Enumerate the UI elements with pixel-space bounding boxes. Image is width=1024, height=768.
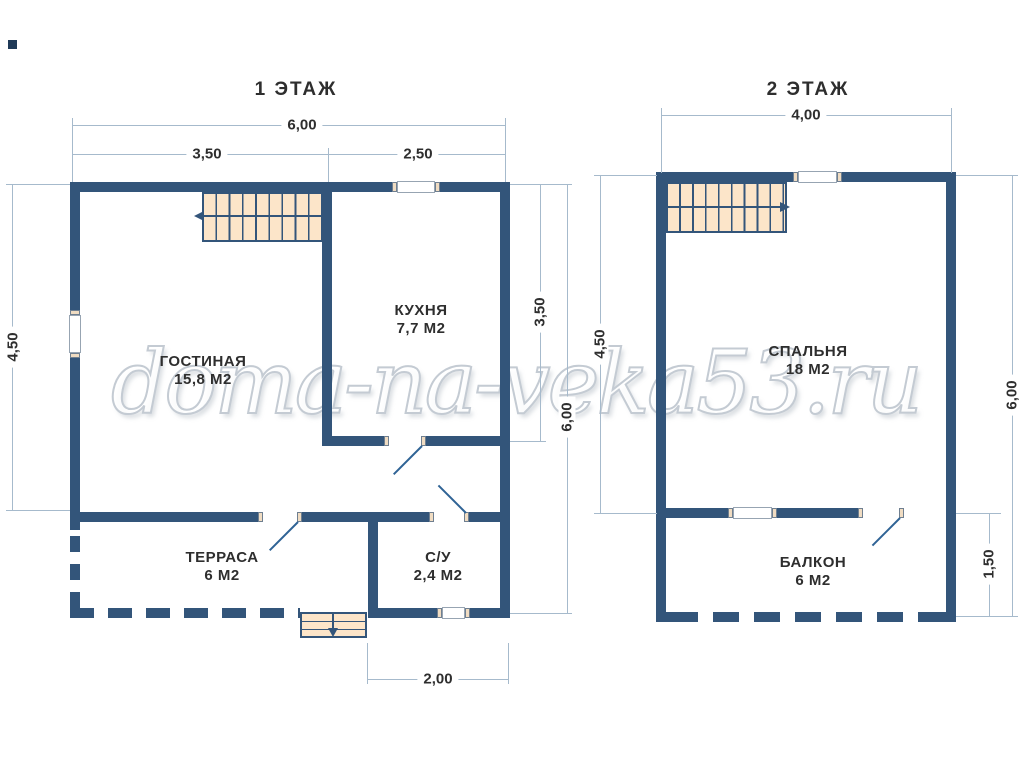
plan2-stairs-midline bbox=[666, 206, 787, 208]
dim-plan1-left: 4,50 bbox=[5, 326, 22, 367]
extension-line bbox=[72, 118, 73, 182]
dim-plan1-bottom: 2,00 bbox=[417, 671, 458, 688]
room-label-living-room: ГОСТИНАЯ 15,8 М2 bbox=[160, 353, 247, 389]
plan1-stairs bbox=[202, 192, 325, 242]
plan2-left-wall bbox=[656, 172, 666, 622]
plan1-kitchen-bottom-wall-b bbox=[426, 436, 500, 446]
stairs-direction-arrow-right bbox=[780, 202, 790, 212]
extension-line bbox=[6, 184, 70, 185]
room-name: КУХНЯ bbox=[395, 302, 448, 320]
plan1-bathroom-top-wall-a bbox=[378, 512, 429, 522]
room-label-kitchen: КУХНЯ 7,7 М2 bbox=[395, 302, 448, 338]
dim-plan2-top-total: 4,00 bbox=[785, 107, 826, 124]
extension-line bbox=[956, 616, 1018, 617]
extension-line bbox=[956, 513, 1001, 514]
plan2-divider-wall-b bbox=[777, 508, 858, 518]
room-area: 2,4 М2 bbox=[414, 567, 463, 585]
door-jamb bbox=[429, 512, 434, 522]
room-area: 6 М2 bbox=[780, 572, 846, 590]
dim-plan2-left: 4,50 bbox=[592, 323, 609, 364]
plan1-title: 1 ЭТАЖ bbox=[255, 79, 338, 101]
room-area: 6 М2 bbox=[185, 567, 258, 585]
plan2-right-wall bbox=[946, 172, 956, 622]
room-label-terrace: ТЕРРАСА 6 М2 bbox=[185, 549, 258, 585]
plan1-top-wall bbox=[70, 182, 510, 192]
door-jamb bbox=[384, 436, 389, 446]
room-name: БАЛКОН bbox=[780, 554, 846, 572]
room-name: ТЕРРАСА bbox=[185, 549, 258, 567]
dim-plan2-right-balcony: 1,50 bbox=[981, 543, 998, 584]
extension-line bbox=[594, 513, 657, 514]
plan2-balcony-dashed-wall bbox=[672, 612, 932, 622]
extension-line bbox=[956, 175, 1018, 176]
window-jamb bbox=[465, 608, 470, 618]
room-name: СПАЛЬНЯ bbox=[768, 343, 847, 361]
balcony-window bbox=[733, 507, 772, 519]
entry-direction-arrow-down bbox=[328, 628, 338, 637]
extension-line bbox=[594, 175, 657, 176]
plan1-stairs-midline bbox=[202, 215, 325, 217]
dim-plan1-right-kitchen: 3,50 bbox=[532, 291, 549, 332]
dimension-line bbox=[72, 154, 506, 155]
balcony-door-swing bbox=[872, 517, 901, 546]
plan1-terrace-dashed-wall bbox=[70, 608, 300, 618]
corner-mark bbox=[8, 40, 17, 49]
window-jamb bbox=[70, 353, 80, 358]
room-label-bathroom: С/У 2,4 М2 bbox=[414, 549, 463, 585]
plan1-terrace-top-wall-a bbox=[80, 512, 258, 522]
door-jamb bbox=[899, 508, 904, 518]
bathroom-window bbox=[442, 607, 465, 619]
plan1-right-wall bbox=[500, 182, 510, 618]
dim-plan1-right-total: 6,00 bbox=[559, 396, 576, 437]
room-name: С/У bbox=[414, 549, 463, 567]
plan1-bathroom-top-wall-b bbox=[469, 512, 500, 522]
extension-line bbox=[510, 613, 572, 614]
extension-line bbox=[510, 184, 572, 185]
extension-line bbox=[508, 643, 509, 684]
room-label-balcony: БАЛКОН 6 М2 bbox=[780, 554, 846, 590]
dim-plan1-top-left: 3,50 bbox=[186, 146, 227, 163]
plan2-bottom-corner-left bbox=[656, 612, 672, 622]
extension-line bbox=[6, 510, 70, 511]
plan1-kitchen-bottom-wall-a bbox=[322, 436, 384, 446]
bedroom-window bbox=[798, 171, 837, 183]
door-jamb bbox=[858, 508, 863, 518]
room-area: 7,7 М2 bbox=[395, 320, 448, 338]
plan2-bottom-corner-right bbox=[932, 612, 956, 622]
window-jamb bbox=[837, 172, 842, 182]
plan1-bathroom-left-wall bbox=[368, 512, 378, 618]
window-jamb bbox=[435, 182, 440, 192]
floor-plan-canvas: doma-na-veka53.ru 1 ЭТАЖ bbox=[0, 0, 1024, 768]
plan1-terrace-top-wall-b bbox=[302, 512, 368, 522]
kitchen-window bbox=[397, 181, 435, 193]
plan2-divider-wall-a bbox=[666, 508, 728, 518]
plan2-title: 2 ЭТАЖ bbox=[767, 79, 850, 101]
bathroom-door-swing bbox=[438, 485, 467, 514]
terrace-door-swing bbox=[269, 521, 299, 551]
room-area: 18 М2 bbox=[768, 361, 847, 379]
stairs-direction-arrow-left bbox=[194, 211, 204, 221]
room-area: 15,8 М2 bbox=[160, 371, 247, 389]
room-name: ГОСТИНАЯ bbox=[160, 353, 247, 371]
living-room-window bbox=[69, 315, 81, 353]
extension-line bbox=[951, 108, 952, 173]
extension-line bbox=[367, 643, 368, 684]
dim-plan2-right-total: 6,00 bbox=[1004, 374, 1021, 415]
extension-line bbox=[661, 108, 662, 173]
room-label-bedroom: СПАЛЬНЯ 18 М2 bbox=[768, 343, 847, 379]
dim-plan1-top-right: 2,50 bbox=[397, 146, 438, 163]
door-jamb bbox=[258, 512, 263, 522]
extension-line bbox=[505, 118, 506, 182]
plan1-left-wall-dashed bbox=[70, 536, 80, 618]
dim-plan1-top-total: 6,00 bbox=[281, 117, 322, 134]
kitchen-door-swing bbox=[393, 445, 423, 475]
